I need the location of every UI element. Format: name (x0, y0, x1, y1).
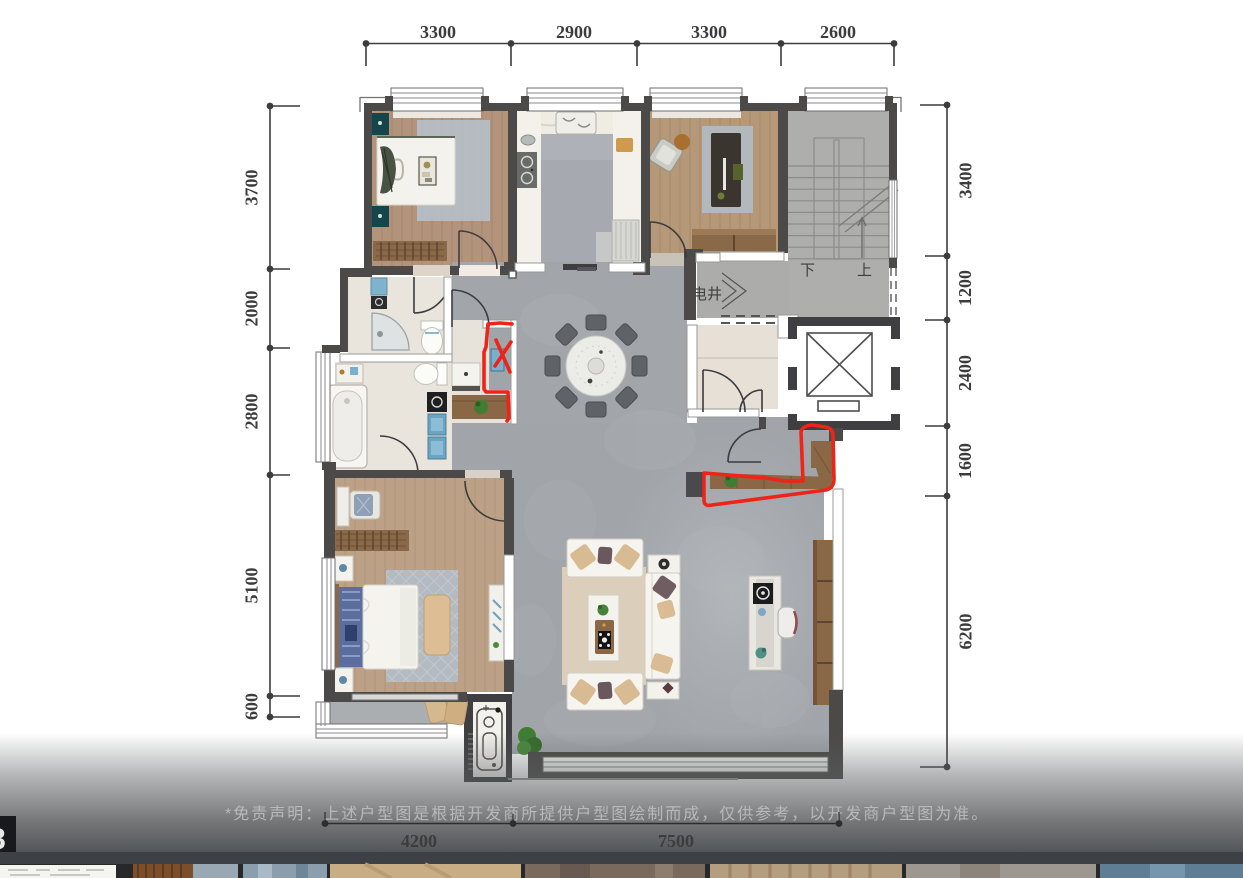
svg-text:电井: 电井 (692, 286, 722, 303)
svg-text:下: 下 (800, 262, 815, 279)
svg-text:6200: 6200 (956, 614, 976, 650)
svg-text:1200: 1200 (955, 270, 975, 306)
svg-text:5100: 5100 (242, 568, 262, 604)
svg-text:3300: 3300 (420, 22, 456, 42)
svg-text:*免责声明：上述户型图是根据开发商所提供户型图绘制而成，仅供: *免责声明：上述户型图是根据开发商所提供户型图绘制而成，仅供参考，以开发商户型图… (225, 805, 989, 823)
svg-text:3400: 3400 (956, 163, 976, 199)
svg-text:4200: 4200 (401, 831, 437, 851)
svg-text:2600: 2600 (820, 22, 856, 42)
svg-text:2900: 2900 (556, 22, 592, 42)
svg-text:3700: 3700 (242, 170, 262, 206)
svg-text:2400: 2400 (955, 355, 975, 391)
svg-text:1600: 1600 (955, 443, 975, 479)
svg-text:600: 600 (242, 693, 262, 720)
svg-text:上: 上 (857, 262, 872, 279)
svg-text:2800: 2800 (242, 394, 262, 430)
svg-text:3300: 3300 (691, 22, 727, 42)
svg-text:7500: 7500 (658, 831, 694, 851)
svg-text:2000: 2000 (242, 291, 262, 327)
svg-text:8: 8 (0, 823, 6, 856)
